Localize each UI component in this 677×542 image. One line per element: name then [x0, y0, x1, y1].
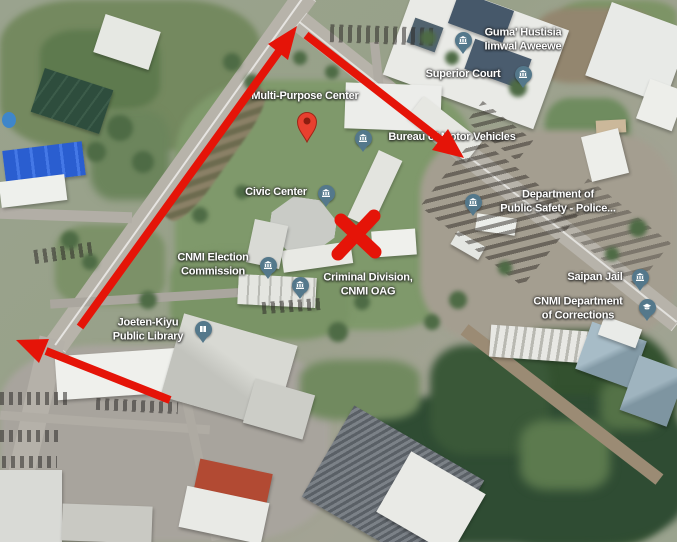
map-label-dept-public-safety[interactable]: Department ofPublic Safety - Police... — [500, 188, 615, 216]
tree — [498, 261, 512, 275]
map-label-superior-court[interactable]: Superior Court — [426, 68, 501, 82]
tree — [244, 74, 260, 90]
tree — [449, 291, 467, 309]
building — [61, 503, 152, 542]
tree — [61, 231, 79, 249]
building — [0, 470, 62, 542]
map-label-multi-purpose-center[interactable]: Multi-Purpose Center — [251, 90, 358, 104]
map-label-joeten-kiyu-library[interactable]: Joeten-KiyuPublic Library — [113, 316, 184, 344]
map-label-cnmi-corrections[interactable]: CNMI Departmentof Corrections — [533, 295, 622, 323]
institution-icon[interactable] — [355, 130, 372, 147]
parking-row — [330, 24, 435, 46]
map-label-saipan-jail[interactable]: Saipan Jail — [567, 271, 622, 285]
parking-row — [0, 392, 72, 405]
tree — [424, 314, 440, 330]
tree — [132, 151, 154, 173]
book-icon[interactable] — [195, 321, 212, 338]
institution-icon[interactable] — [260, 257, 277, 274]
institution-icon[interactable] — [515, 66, 532, 83]
tree — [629, 219, 647, 237]
map-label-civic-center[interactable]: Civic Center — [245, 186, 307, 200]
tree — [107, 115, 133, 141]
institution-icon[interactable] — [455, 32, 472, 49]
graduation-cap-icon[interactable] — [639, 299, 656, 316]
map-label-bureau-of-motor-vehicles[interactable]: Bureau of Motor Vehicles — [388, 131, 515, 145]
tree — [328, 322, 348, 342]
tree — [325, 65, 339, 79]
tree — [86, 142, 106, 162]
map-label-cnmi-election-commission[interactable]: CNMI ElectionCommission — [177, 251, 248, 279]
tree — [82, 254, 98, 270]
satellite-map[interactable]: Guma' HustisiaIimwal Aweewe Superior Cou… — [0, 0, 677, 542]
tree — [293, 51, 307, 65]
pool — [2, 112, 16, 128]
institution-icon[interactable] — [292, 277, 309, 294]
map-label-criminal-division[interactable]: Criminal Division,CNMI OAG — [323, 271, 412, 299]
tree — [139, 291, 157, 309]
tree — [605, 247, 619, 261]
parking-row — [2, 456, 57, 468]
institution-icon[interactable] — [465, 194, 482, 211]
institution-icon[interactable] — [318, 185, 335, 202]
road-west — [0, 208, 132, 224]
institution-icon[interactable] — [632, 269, 649, 286]
tree — [445, 51, 459, 65]
criminal-division-building — [371, 228, 417, 257]
jail-unit-rows — [489, 325, 589, 364]
tree — [192, 207, 208, 223]
tree — [420, 30, 436, 46]
parking-row — [0, 430, 60, 442]
tree — [223, 53, 241, 71]
map-label-guma-hustisia[interactable]: Guma' HustisiaIimwal Aweewe — [485, 26, 562, 54]
